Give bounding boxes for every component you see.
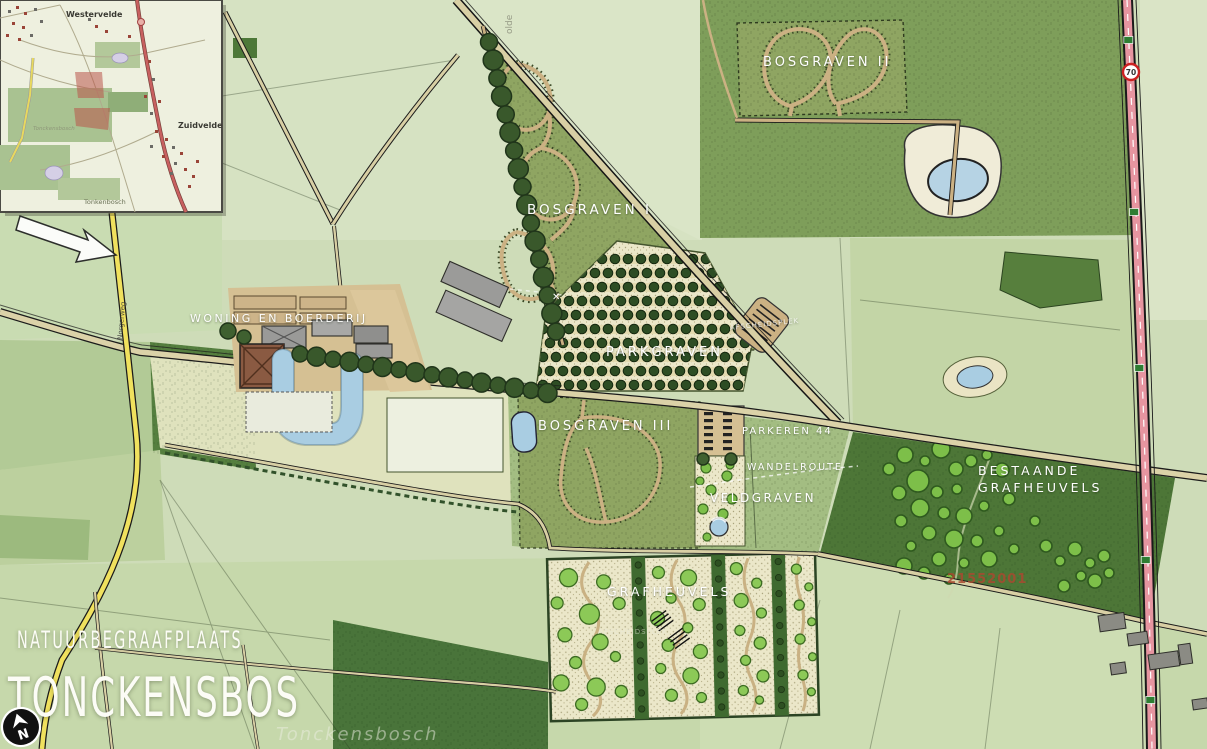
tree xyxy=(237,330,251,344)
tree xyxy=(340,352,359,371)
tree xyxy=(649,366,659,376)
tree xyxy=(778,686,785,693)
tree xyxy=(757,670,769,682)
tree xyxy=(616,268,626,278)
inset-building xyxy=(158,100,161,103)
tree xyxy=(971,535,983,547)
tree xyxy=(716,624,723,631)
tree xyxy=(720,380,730,390)
tree xyxy=(730,562,742,574)
tree xyxy=(307,347,326,366)
car-mark xyxy=(723,426,732,429)
tree xyxy=(597,366,607,376)
inset-building xyxy=(105,30,108,33)
speed-sign: 70 xyxy=(1123,64,1139,80)
tree xyxy=(776,622,783,629)
tree xyxy=(489,70,506,87)
label-bestaande-1: BESTAANDE xyxy=(978,463,1080,478)
tree xyxy=(652,566,664,578)
tree xyxy=(714,366,724,376)
inset-building xyxy=(18,38,21,41)
tree xyxy=(508,159,528,179)
tree xyxy=(738,685,748,695)
tree xyxy=(1040,540,1052,552)
label-woning: WONING EN BOERDERIJ xyxy=(190,312,368,325)
tree xyxy=(638,706,645,713)
tree xyxy=(564,296,574,306)
grafheuvels-area xyxy=(547,553,819,721)
tree xyxy=(668,380,678,390)
inset-building xyxy=(150,112,153,115)
tree xyxy=(642,324,652,334)
tree xyxy=(693,644,707,658)
tree xyxy=(577,296,587,306)
tree xyxy=(720,324,730,334)
tree xyxy=(778,670,785,677)
label-bosgraven-3: BOSGRAVEN III xyxy=(538,419,673,434)
tree xyxy=(523,382,539,398)
inset-map: Westervelde Zuidvelde Tonkenbosch Toncke… xyxy=(0,0,226,216)
tree xyxy=(733,352,743,362)
tree xyxy=(610,366,620,376)
tree xyxy=(590,352,600,362)
tree xyxy=(683,668,699,684)
inset-building xyxy=(148,60,151,63)
edge-label: olde xyxy=(505,14,515,34)
tree xyxy=(597,310,607,320)
inset-building xyxy=(155,130,158,133)
inset-building xyxy=(12,22,15,25)
tree xyxy=(979,501,989,511)
tree xyxy=(613,597,625,609)
tree xyxy=(490,377,506,393)
watermark: Tonckensbosch xyxy=(276,724,439,745)
tree xyxy=(1009,544,1019,554)
inset-label-zuidvelde: Zuidvelde xyxy=(178,121,223,130)
car-mark xyxy=(704,419,713,422)
tree xyxy=(662,366,672,376)
inset-building xyxy=(165,138,168,141)
tree xyxy=(716,608,723,615)
inset-building xyxy=(24,12,27,15)
building xyxy=(1178,643,1193,664)
tree xyxy=(603,324,613,334)
tree xyxy=(616,324,626,334)
tree xyxy=(791,564,801,574)
inset-building xyxy=(128,35,131,38)
inset-building xyxy=(150,145,153,148)
tree xyxy=(638,674,645,681)
tree xyxy=(717,656,724,663)
tree xyxy=(590,380,600,390)
tree xyxy=(551,352,561,362)
tree xyxy=(571,310,581,320)
inset-building xyxy=(144,95,147,98)
title-line1: NATUURBEGRAAFPLAATS xyxy=(17,626,243,654)
tree xyxy=(569,656,581,668)
inset-building xyxy=(16,6,19,9)
tree xyxy=(701,366,711,376)
inset-building xyxy=(22,26,25,29)
label-bosgraven-1: BOSGRAVEN I xyxy=(527,202,652,218)
tree xyxy=(688,366,698,376)
car-mark xyxy=(704,440,713,443)
tree xyxy=(906,541,916,551)
tree xyxy=(665,689,677,701)
car-mark xyxy=(704,447,713,450)
tree xyxy=(590,296,600,306)
tree xyxy=(548,323,565,340)
tree xyxy=(584,282,594,292)
tree xyxy=(1076,571,1086,581)
tree xyxy=(577,352,587,362)
tree xyxy=(577,324,587,334)
inset-label-westervelde: Westervelde xyxy=(66,10,123,19)
tree xyxy=(584,310,594,320)
tree xyxy=(558,366,568,376)
tree xyxy=(735,625,745,635)
tree xyxy=(610,651,620,661)
tree xyxy=(662,310,672,320)
tree xyxy=(994,526,1004,536)
tree xyxy=(981,551,997,567)
car-mark xyxy=(704,433,713,436)
tree xyxy=(694,324,704,334)
tree xyxy=(656,663,666,673)
tree xyxy=(718,704,725,711)
tree xyxy=(497,106,514,123)
tree xyxy=(325,351,341,367)
tree xyxy=(777,654,784,661)
tree xyxy=(755,696,763,704)
tree xyxy=(694,296,704,306)
tree xyxy=(636,282,646,292)
tree xyxy=(1088,574,1102,588)
inset-building xyxy=(30,34,33,37)
inset-building xyxy=(34,8,37,11)
tree xyxy=(775,558,782,565)
inset-building xyxy=(8,10,11,13)
tree xyxy=(668,296,678,306)
tree xyxy=(636,310,646,320)
tree xyxy=(808,618,816,626)
tree xyxy=(500,123,520,143)
inset-building xyxy=(95,25,98,28)
tree xyxy=(718,672,725,679)
tree xyxy=(525,231,545,251)
inset-building xyxy=(192,175,195,178)
tree xyxy=(649,254,659,264)
tree xyxy=(718,688,725,695)
tree xyxy=(662,254,672,264)
inset-building xyxy=(180,152,183,155)
tree xyxy=(776,590,783,597)
tree xyxy=(949,462,963,476)
tree xyxy=(892,486,906,500)
tree xyxy=(655,380,665,390)
tree xyxy=(553,675,569,691)
inset-building xyxy=(162,155,165,158)
tree xyxy=(603,268,613,278)
tree xyxy=(558,628,572,642)
tree xyxy=(623,282,633,292)
label-bestaande-2: GRAFHEUVELS xyxy=(978,480,1102,495)
tree xyxy=(697,453,709,465)
tree xyxy=(649,282,659,292)
tree xyxy=(629,324,639,334)
tree xyxy=(629,380,639,390)
tree xyxy=(722,471,732,481)
tree xyxy=(897,447,913,463)
tree xyxy=(472,373,491,392)
car-mark xyxy=(723,433,732,436)
tree xyxy=(715,560,722,567)
tree xyxy=(932,552,946,566)
tree xyxy=(636,610,643,617)
tree xyxy=(597,282,607,292)
tree xyxy=(642,268,652,278)
svg-text:70: 70 xyxy=(1126,68,1136,77)
tree xyxy=(577,380,587,390)
tree xyxy=(1068,542,1082,556)
tree xyxy=(629,268,639,278)
tree xyxy=(564,380,574,390)
tree xyxy=(391,362,407,378)
tree xyxy=(649,310,659,320)
tree xyxy=(481,34,498,51)
tree xyxy=(668,268,678,278)
tree xyxy=(938,507,950,519)
tree xyxy=(931,486,943,498)
inset-building xyxy=(188,185,191,188)
car-mark xyxy=(723,440,732,443)
tree xyxy=(694,380,704,390)
inset-building xyxy=(152,78,155,81)
tree xyxy=(725,453,737,465)
tree xyxy=(505,378,524,397)
tree xyxy=(579,604,599,624)
tree xyxy=(637,658,644,665)
tree xyxy=(688,282,698,292)
tree xyxy=(754,637,766,649)
tree xyxy=(752,578,762,588)
tree xyxy=(688,310,698,320)
tree xyxy=(564,352,574,362)
tree xyxy=(623,254,633,264)
building xyxy=(1192,698,1207,710)
tree xyxy=(655,296,665,306)
tree xyxy=(717,640,724,647)
tree xyxy=(623,310,633,320)
tree xyxy=(220,323,236,339)
tree xyxy=(675,310,685,320)
label-wandelroute: WANDELROUTE xyxy=(747,462,843,473)
tree xyxy=(662,282,672,292)
tree xyxy=(1058,580,1070,592)
tree xyxy=(533,267,553,287)
plan-canvas: 70 BOSGRAVEN II BOSGRAVEN I PARKGRAVEN A… xyxy=(0,0,1207,749)
inset-building xyxy=(40,20,43,23)
hectometer-plate xyxy=(1124,37,1133,44)
tree xyxy=(1098,550,1110,562)
tree xyxy=(965,455,977,467)
cross-mark: ✕ xyxy=(552,292,560,303)
inset-building xyxy=(170,172,173,175)
inset-label-tonckensbosch: Tonckensbosch xyxy=(33,126,75,132)
tree xyxy=(740,655,750,665)
tree xyxy=(636,254,646,264)
tree xyxy=(698,504,708,514)
tree xyxy=(292,346,308,362)
tree xyxy=(777,638,784,645)
tree xyxy=(642,296,652,306)
tree xyxy=(635,562,642,569)
building xyxy=(1098,612,1126,631)
inset-building xyxy=(184,168,187,171)
inset-building xyxy=(174,162,177,165)
label-veldgraven: VELDGRAVEN xyxy=(710,491,816,505)
label-parkeren: PARKEREN 44 xyxy=(742,426,833,437)
inset-label-tonkenbosch: Tonkenbosch xyxy=(83,198,126,206)
small-pool xyxy=(511,411,538,453)
tree xyxy=(584,338,594,348)
tree xyxy=(734,593,748,607)
tree xyxy=(358,356,374,372)
site-plan-map: 70 BOSGRAVEN II BOSGRAVEN I PARKGRAVEN A… xyxy=(0,0,1207,749)
tree xyxy=(727,338,737,348)
tree xyxy=(638,690,645,697)
tree xyxy=(1055,556,1065,566)
tree xyxy=(920,456,930,466)
tree xyxy=(707,380,717,390)
tree xyxy=(693,598,705,610)
tree xyxy=(439,368,458,387)
car-mark xyxy=(704,412,713,415)
tree xyxy=(590,268,600,278)
tree xyxy=(571,366,581,376)
tree xyxy=(696,692,706,702)
tree xyxy=(373,358,392,377)
hectometer-plate xyxy=(1141,557,1150,564)
tree xyxy=(952,484,962,494)
tree xyxy=(675,282,685,292)
tree xyxy=(1085,558,1095,568)
tree xyxy=(492,86,512,106)
hectometer-plate xyxy=(1135,365,1144,372)
tree xyxy=(701,310,711,320)
tree xyxy=(637,642,644,649)
inset-building xyxy=(172,146,175,149)
tree xyxy=(727,366,737,376)
tree xyxy=(406,363,425,382)
tree xyxy=(911,499,929,517)
hectometer-plate xyxy=(1130,209,1139,216)
tree xyxy=(545,366,555,376)
tree xyxy=(616,296,626,306)
tree xyxy=(681,380,691,390)
tree xyxy=(616,380,626,390)
tree xyxy=(668,324,678,334)
tree xyxy=(538,384,557,403)
tree xyxy=(707,324,717,334)
tree xyxy=(584,366,594,376)
tree xyxy=(922,526,936,540)
building xyxy=(1110,662,1126,675)
tree xyxy=(805,583,813,591)
tree xyxy=(623,366,633,376)
tree xyxy=(798,670,808,680)
label-bosgraven-2: BOSGRAVEN II xyxy=(763,55,891,70)
tree xyxy=(514,178,531,195)
tree xyxy=(1030,516,1040,526)
tree xyxy=(655,268,665,278)
tree xyxy=(603,380,613,390)
tree xyxy=(956,508,972,524)
tree xyxy=(483,50,503,70)
tree xyxy=(795,634,805,644)
car-mark xyxy=(723,447,732,450)
tree xyxy=(457,372,473,388)
tree xyxy=(559,568,577,586)
tree xyxy=(714,310,724,320)
tree xyxy=(642,380,652,390)
tree xyxy=(531,251,548,268)
car-mark xyxy=(723,419,732,422)
label-parkgraven: PARKGRAVEN xyxy=(606,345,723,360)
tree xyxy=(675,366,685,376)
tree xyxy=(587,678,605,696)
tree xyxy=(959,558,969,568)
tree xyxy=(629,296,639,306)
tree xyxy=(564,324,574,334)
tree xyxy=(945,530,963,548)
tree xyxy=(615,685,627,697)
car-mark xyxy=(704,426,713,429)
tree xyxy=(655,324,665,334)
tree xyxy=(703,533,711,541)
label-afscheidsplek-zuid: AFSCHEIDSPLEK xyxy=(598,628,668,636)
tree xyxy=(592,634,608,650)
project-number: 21552001 xyxy=(947,572,1027,587)
tree xyxy=(883,463,895,475)
inset-building xyxy=(196,160,199,163)
tree xyxy=(807,688,815,696)
tree xyxy=(610,254,620,264)
building xyxy=(1127,631,1148,646)
tree xyxy=(590,324,600,334)
tree xyxy=(506,142,523,159)
tree xyxy=(575,698,587,710)
tree xyxy=(895,515,907,527)
tree xyxy=(610,282,620,292)
tree xyxy=(776,606,783,613)
tree xyxy=(907,470,929,492)
tree xyxy=(715,576,722,583)
tree xyxy=(733,380,743,390)
tree xyxy=(681,296,691,306)
tree xyxy=(1104,568,1114,578)
tree xyxy=(603,296,613,306)
label-grafheuvels: GRAFHEUVELS xyxy=(607,584,731,599)
tree xyxy=(794,600,804,610)
tree xyxy=(775,574,782,581)
tree xyxy=(778,702,785,709)
hectometer-plate xyxy=(1146,697,1155,704)
tree xyxy=(571,338,581,348)
tree xyxy=(696,477,704,485)
tree xyxy=(551,597,563,609)
inset-building xyxy=(6,34,9,37)
